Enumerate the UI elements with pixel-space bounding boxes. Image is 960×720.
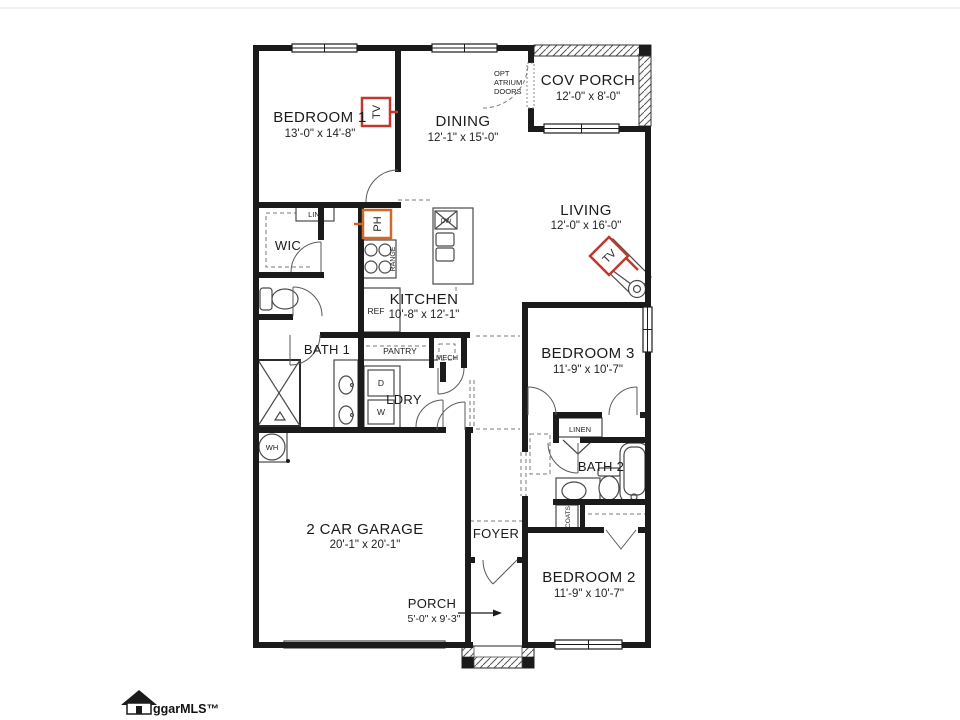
label-bath2: BATH 2 (578, 459, 624, 474)
toilet-bath1 (260, 288, 298, 310)
linen-closet (558, 418, 602, 454)
vanity-bath1 (334, 360, 358, 430)
floor-plan-drawing: TV PH TV BEDROOM 1 13'-0" x 14'-8" DININ… (0, 0, 960, 720)
label-washer: W (377, 407, 385, 417)
door-bedroom3-closet (609, 387, 637, 415)
label-lin: LIN. (308, 210, 322, 219)
label-porch: PORCH (408, 596, 456, 611)
label-ref: REF (368, 306, 385, 316)
label-dining: DINING (436, 113, 491, 130)
entry-stoop (462, 646, 534, 668)
shower-bath1 (258, 360, 300, 426)
label-linen: LINEN (569, 425, 591, 434)
note-opt: OPT (494, 69, 510, 78)
label-coats: COATS (565, 505, 572, 528)
attic-access (530, 434, 550, 474)
dims-bedroom2: 11'-9" x 10'-7" (554, 588, 624, 600)
label-cov-porch: COV PORCH (541, 72, 635, 89)
window-bedroom2 (555, 640, 622, 649)
door-front-entry (483, 560, 493, 584)
window-cov-porch (544, 124, 619, 133)
tv-label-bedroom1: TV (371, 104, 383, 119)
label-pantry: PANTRY (383, 346, 417, 356)
door-bath2 (548, 443, 578, 473)
door-bedroom2-closet (606, 530, 636, 549)
porch-arrow (458, 610, 502, 617)
tv-marker-bedroom1: TV (362, 98, 398, 126)
note-atrium: ATRIUM (494, 78, 522, 87)
label-bedroom3: BEDROOM 3 (541, 345, 635, 362)
door-bedroom3 (528, 387, 556, 415)
kitchen-island (433, 208, 473, 284)
dims-garage: 20'-1" x 20'-1" (330, 539, 401, 551)
label-wic: WIC (275, 238, 301, 253)
door-garage-entry (437, 402, 465, 430)
label-range: RANGE (390, 246, 397, 271)
dims-cov-porch: 12'-0" x 8'-0" (556, 91, 620, 103)
label-ldry: LDRY (386, 392, 422, 407)
label-living: LIVING (560, 202, 612, 219)
dims-porch: 5'-0" x 9'-3" (408, 613, 461, 625)
dims-bedroom3: 11'-9" x 10'-7" (553, 364, 623, 376)
label-dryer: D (378, 378, 384, 388)
label-foyer: FOYER (473, 526, 519, 541)
dims-bedroom1: 13'-0" x 14'-8" (285, 128, 356, 140)
floor-plan-page: TV PH TV BEDROOM 1 13'-0" x 14'-8" DININ… (0, 0, 960, 720)
room-labels: BEDROOM 1 13'-0" x 14'-8" DINING 12'-1" … (273, 72, 636, 625)
note-doors: DOORS (494, 87, 522, 96)
dims-living: 12'-0" x 16'-0" (551, 220, 622, 232)
label-wh: WH (266, 443, 279, 452)
window-dining (432, 44, 497, 52)
label-kitchen: KITCHEN (390, 291, 459, 308)
dims-dining: 12'-1" x 15'-0" (428, 132, 499, 144)
ph-label-kitchen: PH (372, 216, 384, 231)
label-garage: 2 CAR GARAGE (306, 521, 423, 538)
label-dw: DW (441, 218, 453, 225)
label-bath1: BATH 1 (304, 342, 350, 357)
watermark-text: ggarMLS™ (153, 702, 219, 716)
window-bedroom1 (292, 44, 357, 52)
door-bedroom1 (366, 170, 398, 202)
label-mech: MECH (436, 353, 458, 362)
window-bedroom3 (643, 307, 652, 352)
label-bedroom1: BEDROOM 1 (273, 109, 367, 126)
dims-kitchen: 10'-8" x 12'-1" (389, 309, 460, 321)
watermark: ggarMLS™ (121, 690, 219, 716)
label-bedroom2: BEDROOM 2 (542, 569, 636, 586)
